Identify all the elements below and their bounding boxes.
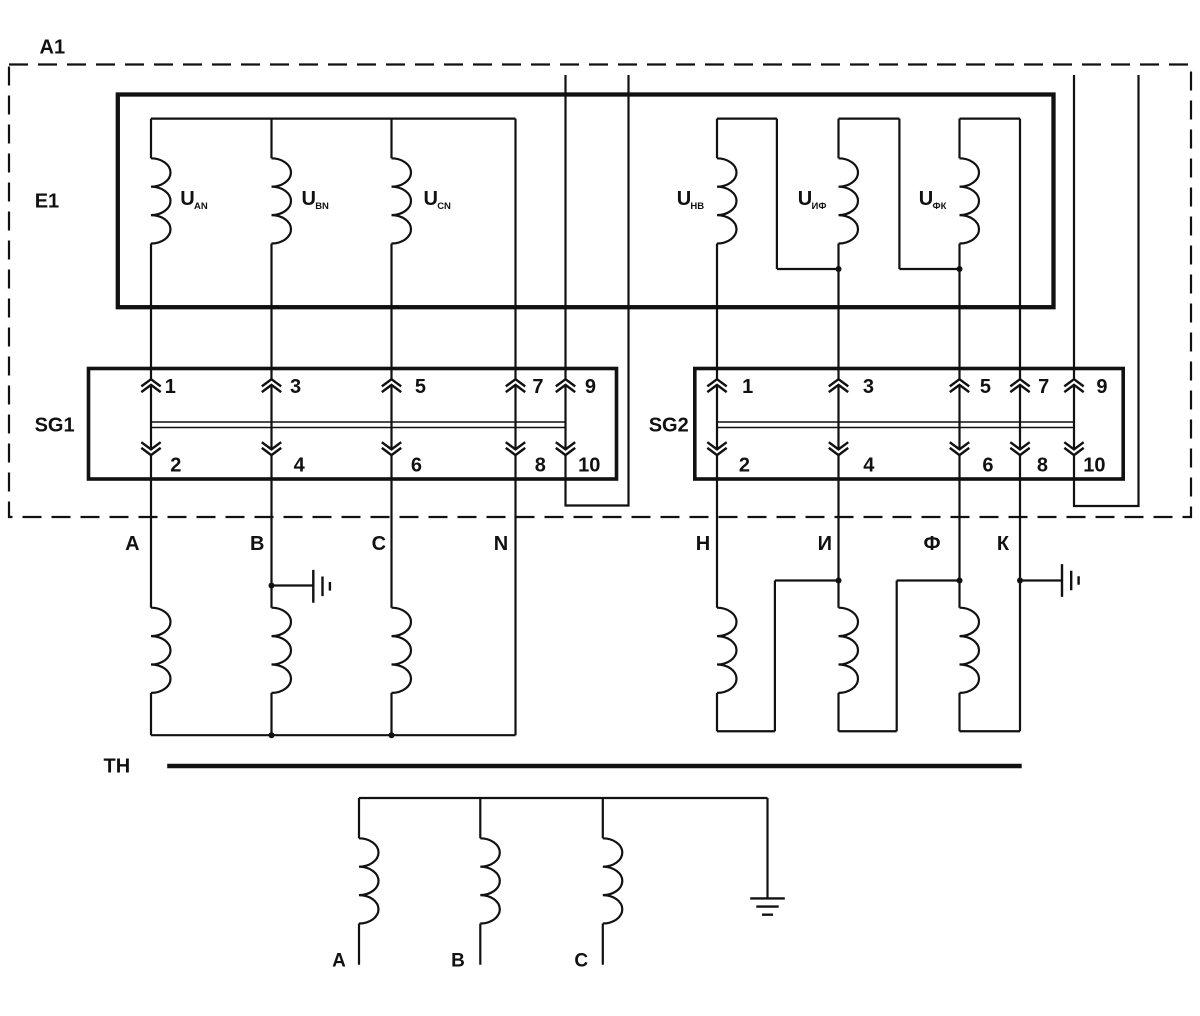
- svg-text:7: 7: [532, 376, 543, 398]
- svg-text:1: 1: [742, 376, 753, 398]
- svg-text:К: К: [997, 533, 1010, 555]
- svg-text:3: 3: [290, 376, 301, 398]
- svg-text:A: A: [332, 951, 346, 972]
- svg-text:9: 9: [1096, 376, 1107, 398]
- svg-text:U: U: [798, 188, 812, 210]
- svg-text:U: U: [424, 188, 438, 210]
- svg-text:BN: BN: [315, 201, 329, 212]
- svg-text:SG2: SG2: [649, 415, 689, 437]
- svg-text:10: 10: [1083, 455, 1105, 477]
- svg-text:И: И: [818, 533, 832, 555]
- svg-text:3: 3: [863, 376, 874, 398]
- svg-text:6: 6: [411, 455, 422, 477]
- svg-text:6: 6: [982, 455, 993, 477]
- svg-text:U: U: [180, 188, 194, 210]
- svg-text:N: N: [494, 533, 508, 555]
- svg-text:Н: Н: [696, 533, 710, 555]
- svg-text:ФК: ФК: [933, 201, 947, 212]
- svg-text:U: U: [919, 188, 933, 210]
- svg-text:A1: A1: [40, 36, 66, 58]
- svg-text:Ф: Ф: [923, 533, 940, 555]
- svg-text:2: 2: [170, 455, 181, 477]
- svg-text:5: 5: [415, 376, 426, 398]
- svg-text:7: 7: [1038, 376, 1049, 398]
- svg-text:8: 8: [535, 455, 546, 477]
- svg-text:НВ: НВ: [690, 201, 704, 212]
- svg-text:SG1: SG1: [35, 415, 75, 437]
- svg-text:10: 10: [578, 455, 600, 477]
- svg-text:8: 8: [1037, 455, 1048, 477]
- svg-text:C: C: [574, 951, 588, 972]
- svg-text:B: B: [451, 951, 465, 972]
- svg-text:C: C: [372, 533, 386, 555]
- svg-text:5: 5: [980, 376, 991, 398]
- svg-text:2: 2: [739, 455, 750, 477]
- svg-text:A: A: [125, 533, 139, 555]
- svg-text:U: U: [677, 188, 691, 210]
- svg-text:9: 9: [585, 376, 596, 398]
- svg-text:ТН: ТН: [104, 756, 131, 778]
- svg-text:E1: E1: [35, 191, 59, 213]
- svg-text:1: 1: [165, 376, 176, 398]
- svg-text:CN: CN: [437, 201, 451, 212]
- svg-text:AN: AN: [194, 201, 208, 212]
- svg-text:B: B: [250, 533, 264, 555]
- svg-text:4: 4: [863, 455, 875, 477]
- svg-text:U: U: [302, 188, 316, 210]
- svg-text:4: 4: [294, 455, 306, 477]
- svg-text:ИФ: ИФ: [812, 201, 827, 212]
